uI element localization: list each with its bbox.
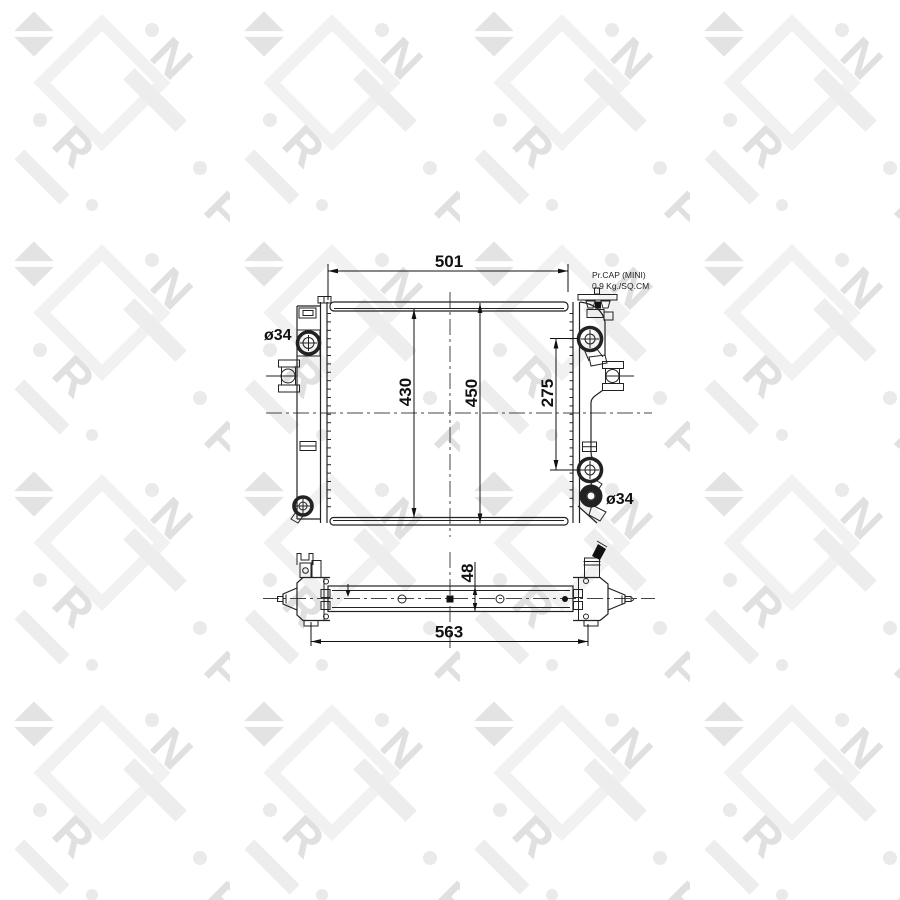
label-port-diameter-right: ø34: [606, 491, 634, 508]
radiator-technical-drawing-page: N R F: [0, 0, 900, 900]
dim-text-430: 430: [396, 378, 415, 406]
left-inlet-port: [298, 332, 320, 354]
dim-text-275: 275: [538, 379, 557, 407]
pressure-cap-note: Pr.CAP (MINI) 0.9 Kg./SQ.CM: [592, 270, 649, 291]
cap-note-line2: 0.9 Kg./SQ.CM: [592, 281, 649, 291]
label-port-diameter-left: ø34: [264, 327, 292, 344]
cap-note-line1: Pr.CAP (MINI): [592, 270, 646, 280]
core-pin: [562, 596, 568, 602]
dim-text-450: 450: [462, 379, 481, 407]
radiator-dimension-drawing: N R F: [0, 0, 900, 900]
dim-text-501: 501: [435, 252, 463, 271]
center-marker: [447, 596, 454, 603]
dim-text-563: 563: [435, 623, 463, 642]
dim-text-48: 48: [458, 564, 477, 583]
